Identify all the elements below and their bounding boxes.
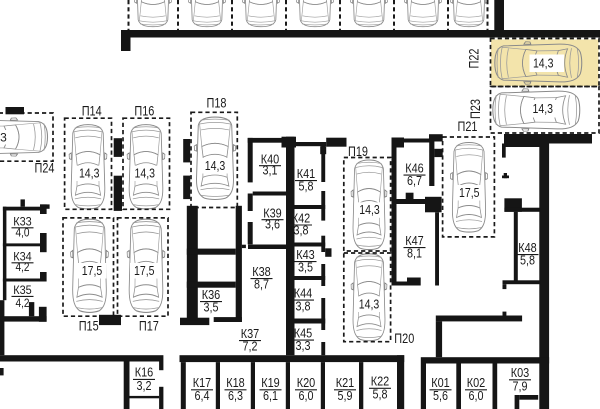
- svg-text:П21: П21: [458, 119, 478, 134]
- svg-text:П22: П22: [467, 49, 482, 69]
- svg-text:П15: П15: [79, 319, 99, 334]
- svg-text:П14: П14: [82, 104, 102, 119]
- svg-text:П23: П23: [468, 99, 483, 119]
- svg-text:3: 3: [0, 130, 7, 144]
- svg-text:6,4: 6,4: [195, 389, 210, 403]
- svg-text:К03: К03: [511, 366, 530, 380]
- svg-text:К01: К01: [431, 376, 450, 390]
- svg-text:К19: К19: [261, 376, 280, 390]
- svg-text:17,5: 17,5: [459, 185, 480, 200]
- svg-text:14,3: 14,3: [359, 202, 380, 217]
- svg-text:8,7: 8,7: [254, 278, 269, 292]
- svg-text:К16: К16: [135, 366, 154, 380]
- svg-text:8,1: 8,1: [407, 247, 422, 261]
- svg-text:17,5: 17,5: [134, 263, 155, 278]
- svg-text:К18: К18: [226, 376, 245, 390]
- svg-text:14,3: 14,3: [79, 165, 100, 180]
- svg-text:3,5: 3,5: [298, 261, 313, 275]
- svg-text:К44: К44: [294, 287, 313, 301]
- svg-text:3,2: 3,2: [137, 379, 152, 393]
- svg-text:5,8: 5,8: [373, 388, 388, 402]
- svg-text:5,9: 5,9: [338, 389, 353, 403]
- svg-text:П24: П24: [35, 161, 55, 176]
- svg-text:14,3: 14,3: [533, 55, 554, 70]
- svg-text:К17: К17: [193, 376, 212, 390]
- svg-text:6,3: 6,3: [228, 389, 243, 403]
- svg-text:4,2: 4,2: [16, 296, 30, 310]
- svg-text:3,5: 3,5: [204, 301, 219, 315]
- svg-text:П18: П18: [207, 96, 227, 111]
- svg-text:14,3: 14,3: [135, 165, 156, 180]
- svg-text:6,1: 6,1: [263, 389, 278, 403]
- svg-text:7,9: 7,9: [513, 380, 528, 394]
- svg-text:4,2: 4,2: [16, 260, 30, 274]
- svg-text:П16: П16: [134, 104, 154, 119]
- svg-text:3,8: 3,8: [294, 224, 309, 238]
- svg-text:6,0: 6,0: [299, 389, 314, 403]
- svg-text:14,3: 14,3: [533, 101, 554, 116]
- svg-text:П19: П19: [348, 144, 368, 159]
- svg-text:5,6: 5,6: [433, 389, 448, 403]
- svg-text:П20: П20: [394, 331, 414, 346]
- svg-text:3,8: 3,8: [296, 300, 311, 314]
- svg-text:6,0: 6,0: [469, 389, 484, 403]
- svg-text:5,8: 5,8: [520, 254, 535, 268]
- svg-text:17,5: 17,5: [82, 263, 103, 278]
- svg-text:14,3: 14,3: [205, 158, 226, 173]
- svg-text:К21: К21: [336, 376, 355, 390]
- svg-text:6,7: 6,7: [407, 174, 422, 188]
- svg-text:П17: П17: [139, 319, 159, 334]
- svg-text:3,3: 3,3: [296, 339, 311, 353]
- svg-text:К35: К35: [13, 283, 32, 297]
- svg-text:7,2: 7,2: [243, 340, 258, 354]
- svg-text:К02: К02: [467, 376, 486, 390]
- svg-text:5,8: 5,8: [299, 180, 314, 194]
- svg-text:К20: К20: [297, 376, 316, 390]
- svg-text:К22: К22: [371, 375, 390, 389]
- svg-text:14,3: 14,3: [359, 297, 380, 312]
